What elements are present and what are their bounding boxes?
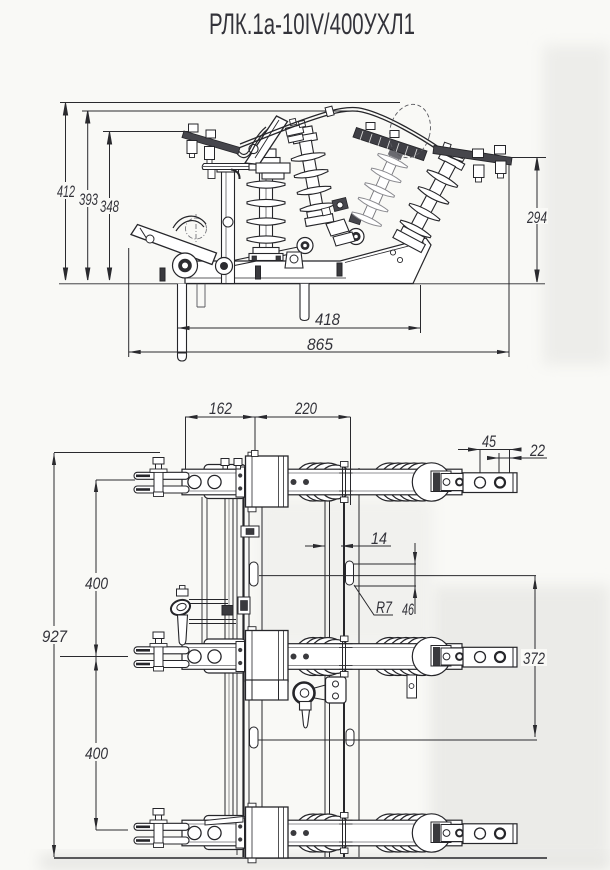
svg-text:220: 220 xyxy=(294,399,317,418)
svg-text:400: 400 xyxy=(85,574,108,593)
svg-text:162: 162 xyxy=(209,399,232,418)
svg-text:14: 14 xyxy=(371,529,387,548)
svg-text:412: 412 xyxy=(57,182,75,201)
svg-text:400: 400 xyxy=(85,744,108,763)
svg-text:927: 927 xyxy=(42,627,67,646)
svg-text:348: 348 xyxy=(100,197,119,216)
svg-text:РЛК.1а-10IV/400УХЛ1: РЛК.1а-10IV/400УХЛ1 xyxy=(209,8,415,41)
svg-text:45: 45 xyxy=(482,432,496,451)
svg-text:R7: R7 xyxy=(376,598,392,617)
svg-text:393: 393 xyxy=(79,190,98,209)
svg-text:46: 46 xyxy=(402,600,414,619)
svg-text:294: 294 xyxy=(526,208,547,227)
svg-text:865: 865 xyxy=(307,335,333,354)
svg-text:22: 22 xyxy=(529,441,545,460)
svg-text:418: 418 xyxy=(315,310,340,329)
svg-text:372: 372 xyxy=(523,649,545,668)
